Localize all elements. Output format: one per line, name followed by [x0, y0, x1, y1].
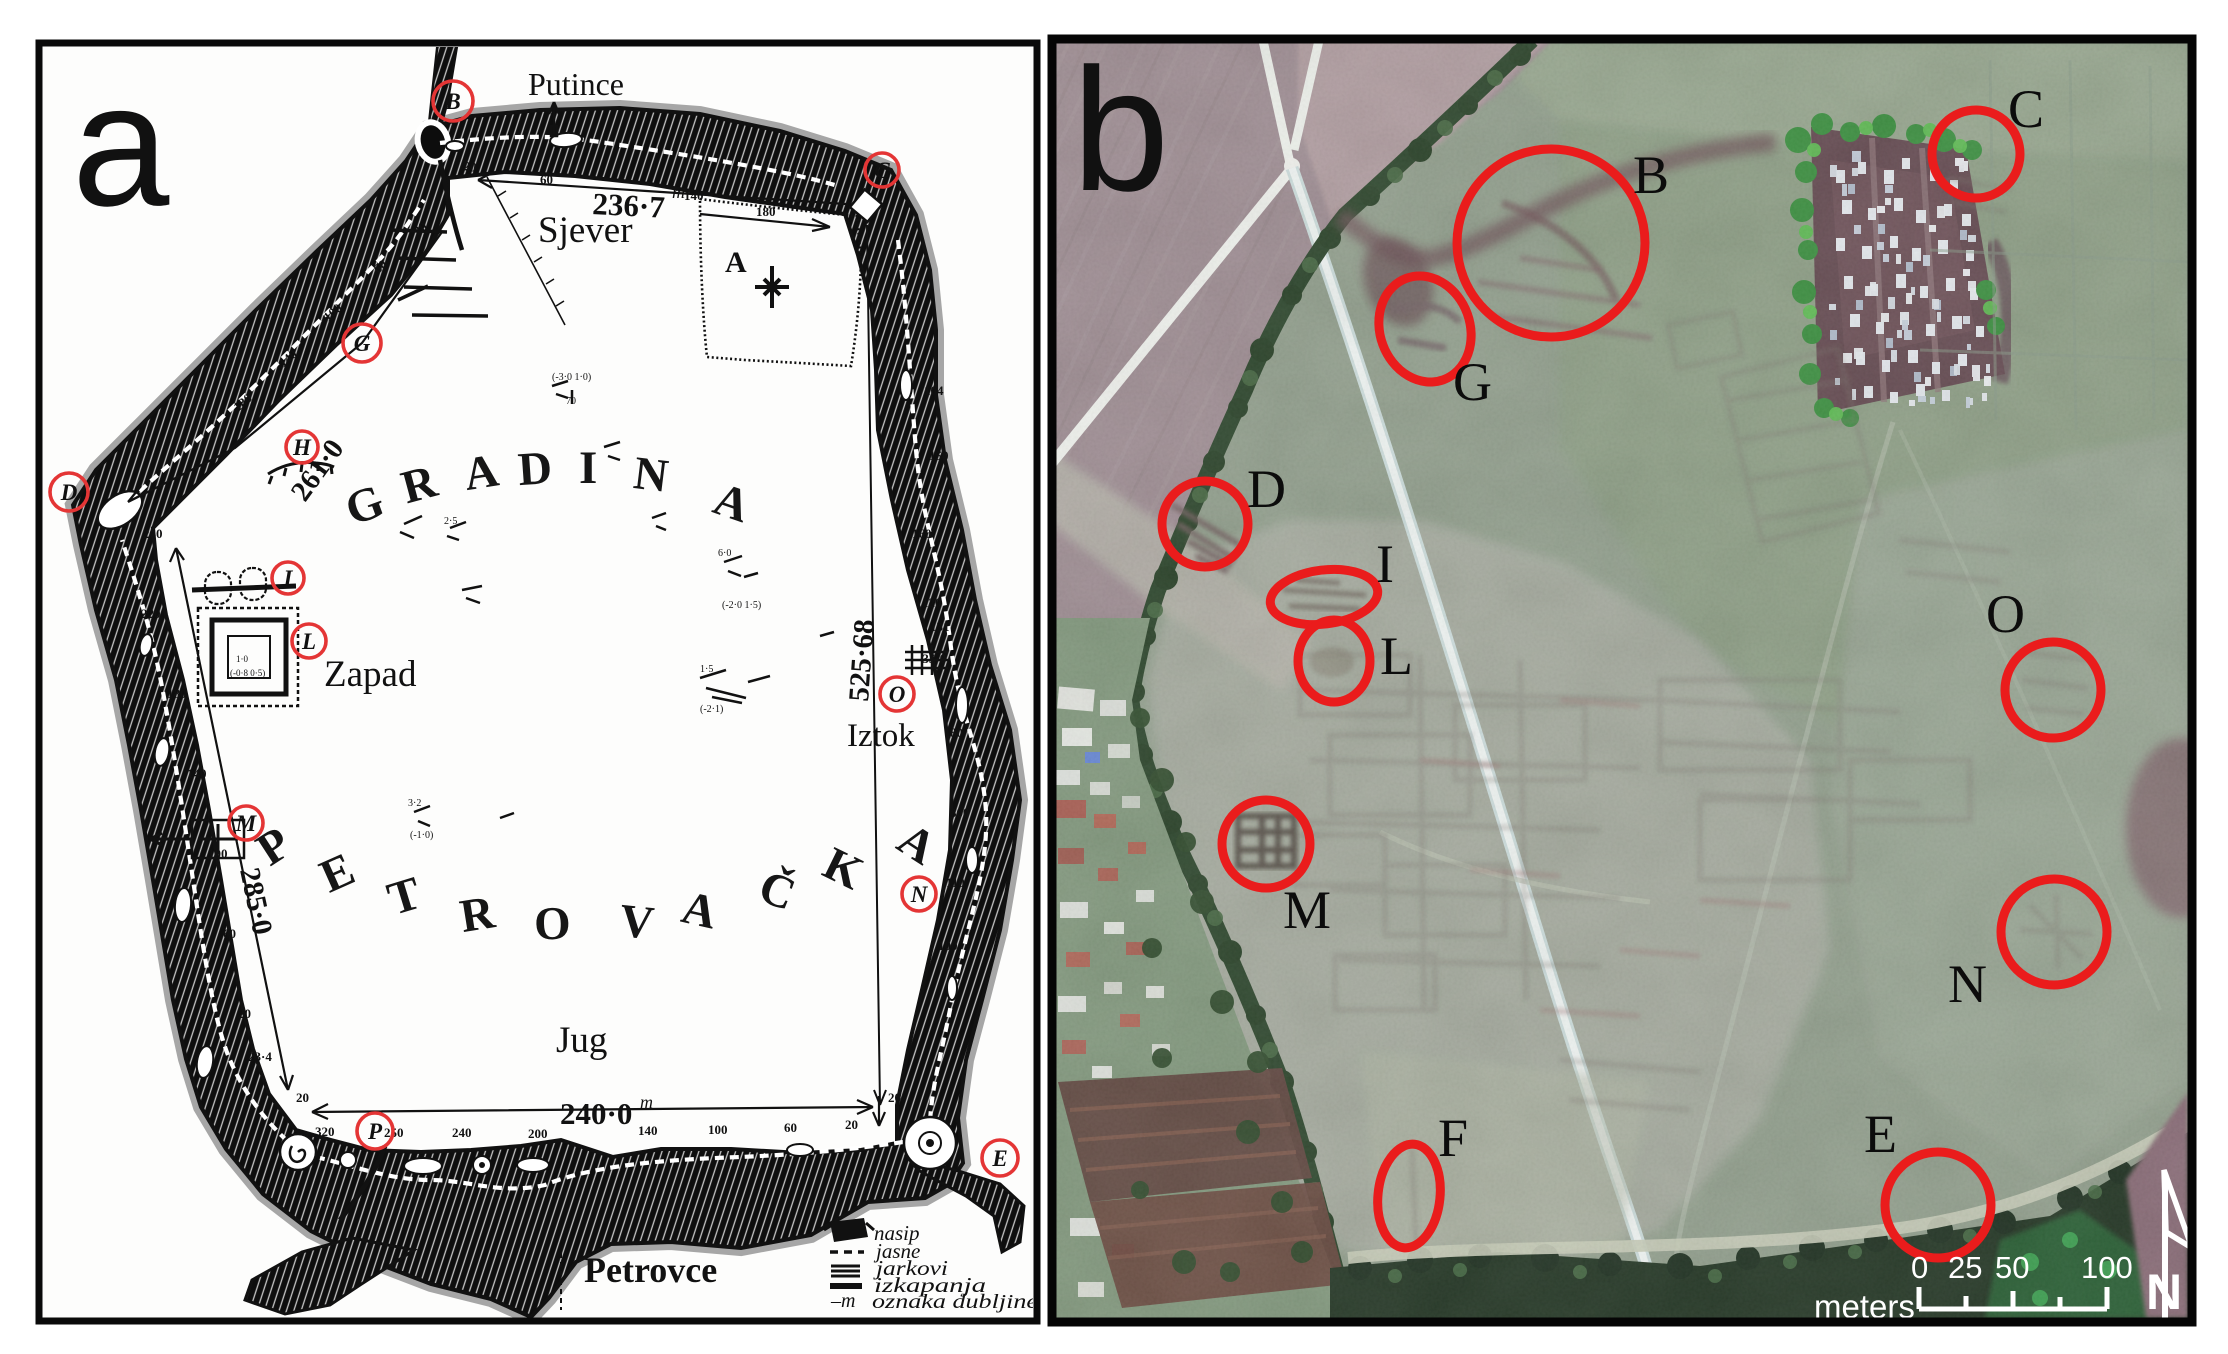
svg-text:E: E: [991, 1146, 1007, 1171]
svg-text:Petrovce: Petrovce: [584, 1250, 717, 1290]
svg-text:220: 220: [141, 606, 161, 621]
svg-text:O: O: [889, 682, 906, 707]
svg-text:I: I: [1376, 534, 1394, 594]
svg-text:131: 131: [930, 619, 950, 634]
svg-text:20: 20: [888, 1090, 901, 1105]
svg-text:20: 20: [238, 1006, 251, 1021]
svg-text:20: 20: [845, 1117, 858, 1132]
svg-text:(-1·0): (-1·0): [410, 830, 433, 841]
svg-text:H: H: [292, 435, 312, 460]
svg-text:104: 104: [924, 383, 944, 398]
svg-text:20: 20: [296, 1090, 309, 1105]
svg-text:1·5: 1·5: [700, 664, 713, 675]
svg-text:Iztok: Iztok: [847, 718, 915, 754]
svg-text:80: 80: [950, 725, 963, 740]
svg-text:N: N: [631, 447, 671, 503]
svg-text:b: b: [1072, 33, 1169, 228]
svg-text:200: 200: [528, 1126, 548, 1141]
svg-text:Zapad: Zapad: [324, 654, 417, 695]
svg-text:100: 100: [938, 938, 958, 953]
svg-text:O: O: [533, 897, 571, 950]
svg-text:260: 260: [143, 526, 163, 541]
svg-text:240·0: 240·0: [560, 1096, 632, 1131]
svg-text:110: 110: [946, 875, 965, 890]
svg-text:240: 240: [452, 1125, 472, 1140]
svg-text:D: D: [1247, 459, 1286, 519]
svg-text:Jug: Jug: [556, 1020, 607, 1061]
svg-text:G: G: [354, 331, 371, 356]
svg-text:Putince: Putince: [528, 66, 624, 102]
svg-text:180: 180: [167, 686, 187, 701]
svg-text:6·0: 6·0: [718, 548, 731, 559]
svg-text:(-2·1): (-2·1): [700, 704, 723, 715]
svg-text:(-3·0 1·0): (-3·0 1·0): [552, 372, 591, 383]
svg-text:(-2·0 1·5): (-2·0 1·5): [722, 600, 761, 611]
svg-text:23·4: 23·4: [248, 1049, 272, 1064]
svg-text:C: C: [2008, 79, 2044, 139]
svg-text:P: P: [367, 1119, 383, 1144]
svg-text:B: B: [1633, 145, 1669, 205]
svg-text:300: 300: [950, 805, 970, 820]
svg-text:G: G: [1453, 352, 1492, 412]
svg-text:N: N: [1948, 954, 1987, 1014]
svg-text:L: L: [301, 629, 316, 654]
svg-text:V: V: [617, 895, 656, 950]
svg-text:O: O: [1986, 584, 2025, 644]
svg-text:160: 160: [912, 526, 932, 541]
svg-text:25: 25: [1948, 1250, 1982, 1285]
svg-text:180: 180: [756, 204, 776, 219]
svg-text:M: M: [1283, 880, 1331, 940]
svg-text:70: 70: [566, 396, 576, 407]
svg-text:2·5: 2·5: [444, 516, 457, 527]
svg-text:D: D: [516, 442, 553, 496]
svg-text:120: 120: [922, 595, 942, 610]
svg-text:–m: –m: [830, 1290, 855, 1312]
svg-text:N: N: [910, 882, 929, 907]
svg-text:525·68: 525·68: [843, 618, 881, 702]
svg-text:3·2: 3·2: [408, 798, 421, 809]
svg-text:E: E: [1864, 1104, 1897, 1164]
svg-text:oznaka dubljine: oznaka dubljine: [872, 1291, 1038, 1313]
svg-text:20: 20: [463, 158, 478, 175]
svg-text:a: a: [72, 48, 170, 243]
svg-text:320: 320: [315, 1124, 335, 1139]
svg-text:50: 50: [1995, 1250, 2029, 1285]
svg-text:60: 60: [540, 172, 553, 187]
svg-text:60: 60: [784, 1120, 797, 1135]
svg-text:Sjever: Sjever: [538, 210, 633, 251]
svg-text:m: m: [640, 1092, 653, 1112]
svg-text:M: M: [235, 811, 258, 836]
svg-text:1·0: 1·0: [236, 654, 248, 664]
svg-text:140: 140: [684, 188, 704, 203]
svg-text:140: 140: [638, 1123, 658, 1138]
svg-text:B: B: [444, 89, 460, 114]
svg-text:D: D: [60, 480, 78, 505]
svg-text:C: C: [874, 158, 890, 183]
svg-text:I: I: [579, 442, 597, 494]
svg-text:L: L: [1380, 626, 1413, 686]
svg-text:0: 0: [1911, 1250, 1928, 1285]
svg-text:60: 60: [223, 926, 236, 941]
svg-text:100: 100: [2081, 1250, 2133, 1285]
svg-text:100: 100: [708, 1122, 728, 1137]
svg-text:150: 150: [929, 448, 949, 463]
svg-text:I: I: [283, 566, 294, 591]
svg-text:140: 140: [187, 766, 207, 781]
svg-text:A: A: [725, 246, 747, 279]
svg-text:F: F: [1438, 1108, 1468, 1168]
svg-text:(-0·8 0·5): (-0·8 0·5): [230, 668, 265, 678]
